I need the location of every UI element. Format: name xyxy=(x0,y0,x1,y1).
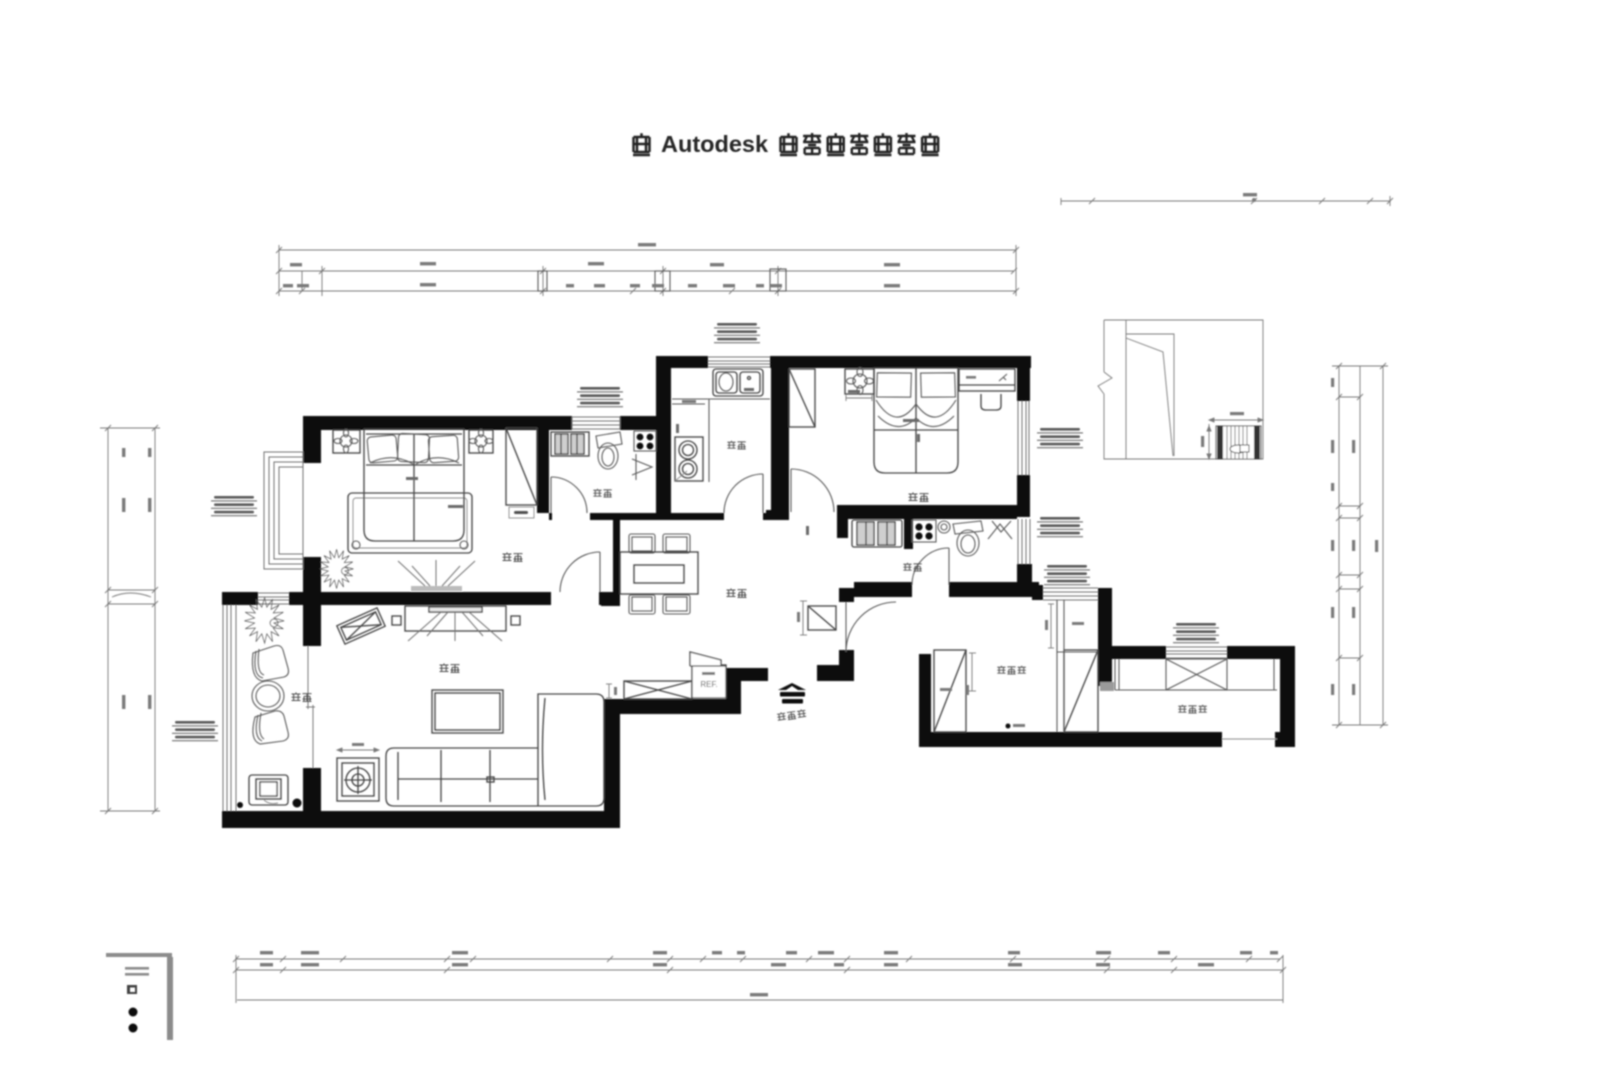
svg-text:REF.: REF. xyxy=(700,680,717,689)
svg-text:Autodesk: Autodesk xyxy=(661,131,769,157)
